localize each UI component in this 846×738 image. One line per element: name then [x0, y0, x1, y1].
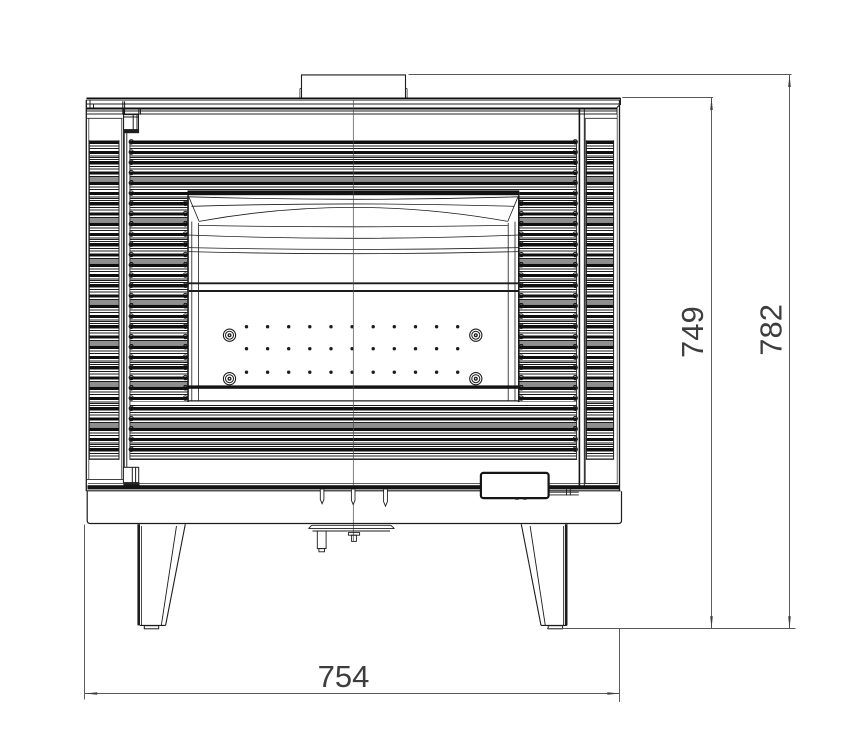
svg-text:754: 754 — [318, 659, 370, 694]
svg-text:749: 749 — [675, 306, 710, 358]
svg-text:782: 782 — [754, 304, 789, 356]
